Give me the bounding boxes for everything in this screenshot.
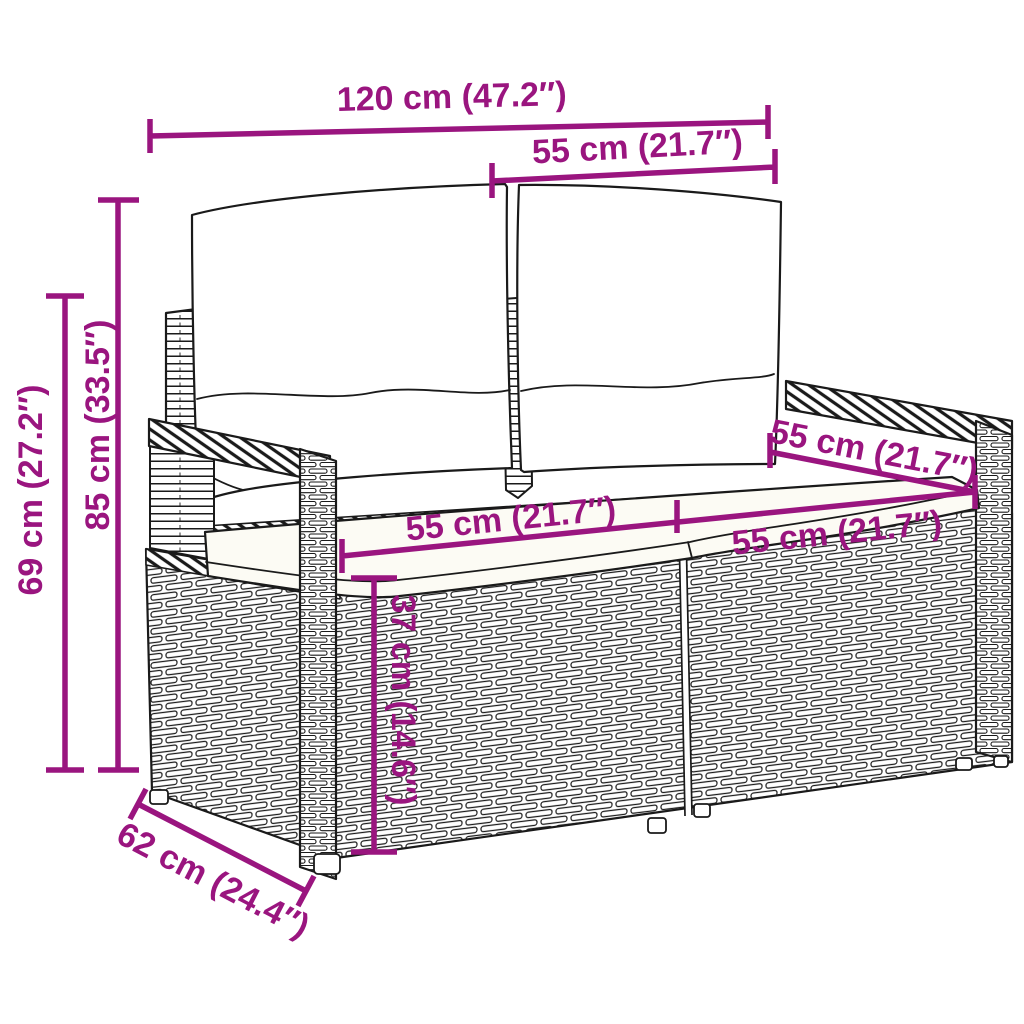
dim-seat-height-label: 37 cm (14.6″) [384, 595, 422, 806]
product-dimension-image: 120 cm (47.2″) 55 cm (21.7″) 85 cm (33.5… [0, 0, 1024, 1024]
dim-overall-height: 85 cm (33.5″) [79, 200, 139, 770]
foot [314, 854, 340, 874]
foot [956, 758, 972, 770]
dim-armrest-height: 69 cm (27.2″) [12, 296, 84, 770]
foot [994, 756, 1008, 767]
foot [150, 790, 168, 804]
armrest-left-post [300, 449, 336, 879]
diagram-canvas: 120 cm (47.2″) 55 cm (21.7″) 85 cm (33.5… [0, 0, 1024, 1024]
back-cushion-right [517, 185, 781, 472]
dim-overall-height-label: 85 cm (33.5″) [79, 320, 117, 531]
dim-armrest-height-label: 69 cm (27.2″) [12, 385, 50, 596]
foot [648, 818, 666, 833]
foot [694, 804, 710, 817]
dim-backrest-width-label: 55 cm (21.7″) [531, 123, 744, 172]
dim-overall-width-label: 120 cm (47.2″) [336, 75, 567, 119]
arm-side-column-left [150, 443, 214, 560]
armrest-right-post [976, 421, 1012, 762]
